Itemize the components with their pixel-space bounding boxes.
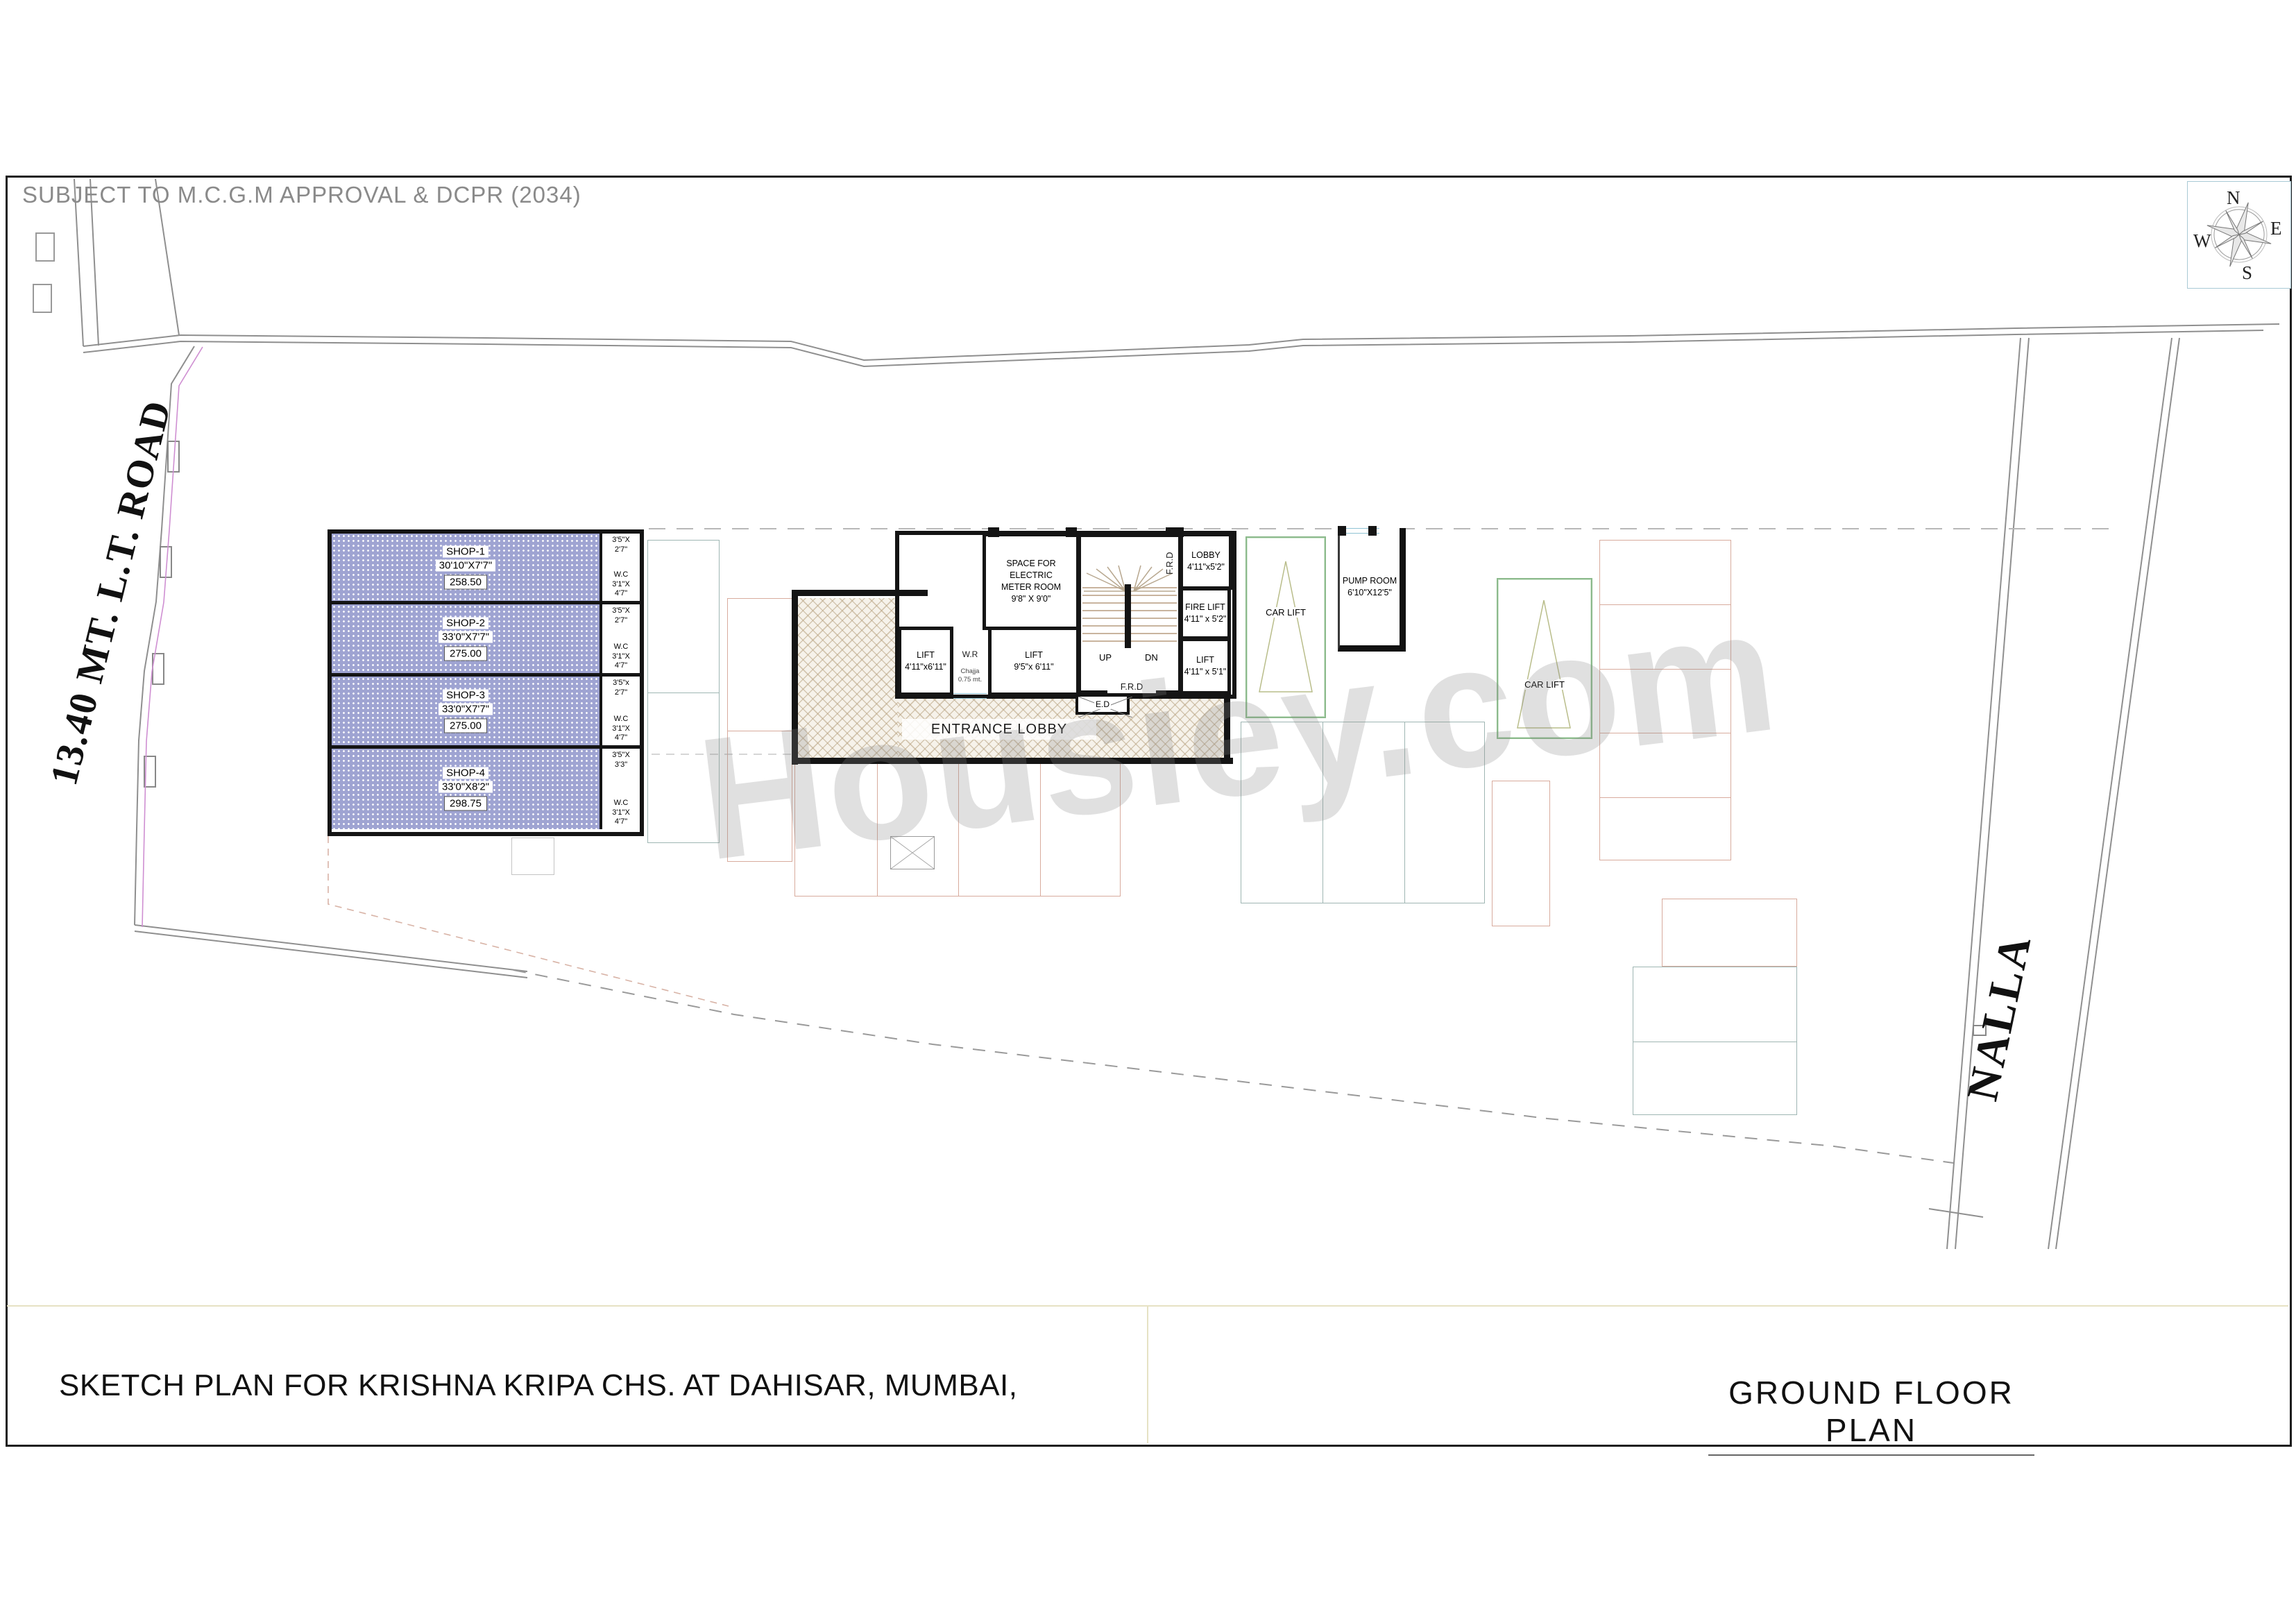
lift-left-label: LIFT 4'11"x6'11" <box>905 649 946 673</box>
nalla-east-edge <box>2048 338 2172 1249</box>
floor-plan-sheet: Housiey.com 13.40 MT. L.T. ROAD NALLA SH… <box>0 0 2296 1623</box>
shop-4-name: SHOP-4 <box>443 767 488 779</box>
shop-3: SHOP-3 33'0"X7'7" 275.00 3'5"x 2'7" W.C … <box>332 677 640 749</box>
nalla-west-edge <box>1947 338 2021 1249</box>
shop-1-closet-dims: 3'5"X 2'7" <box>612 536 630 555</box>
fire-lift: FIRE LIFT 4'11" x 5'2" <box>1180 587 1231 640</box>
shop-4: SHOP-4 33'0"X8'2" 298.75 3'5"X 3'3" W.C … <box>332 749 640 829</box>
stair-divider-wall <box>1125 584 1131 648</box>
compass-n: N <box>2227 187 2240 209</box>
car-icon <box>660 546 708 675</box>
sheet-title: SKETCH PLAN FOR KRISHNA KRIPA CHS. AT DA… <box>59 1368 1018 1403</box>
upper-lobby: LOBBY 4'11"x5'2" <box>1180 533 1232 590</box>
shop-1-area: 258.50 <box>444 575 487 589</box>
shop-1-name: SHOP-1 <box>443 545 488 557</box>
electric-meter-room: SPACE FOR ELECTRIC METER ROOM 9'8" X 9'0… <box>983 533 1080 630</box>
car-lift-left-label: CAR LIFT <box>1264 607 1308 618</box>
shop-2-wc: 3'5"X 2'7" W.C 3'1"X 4'7" <box>599 604 640 673</box>
shops-block: SHOP-1 30'10"X7'7" 258.50 3'5"X 2'7" W.C… <box>328 529 644 836</box>
title-block-divider <box>1147 1305 1148 1443</box>
upper-lobby-label: LOBBY 4'11"x5'2" <box>1187 550 1225 573</box>
shop-3-name: SHOP-3 <box>443 689 488 701</box>
car-icon <box>1604 806 1727 851</box>
shop-3-wc: 3'5"x 2'7" W.C 3'1"X 4'7" <box>599 677 640 745</box>
shop-3-wc-dims: W.C 3'1"X 4'7" <box>612 715 630 743</box>
pump-room-label: PUMP ROOM 6'10"X12'5" <box>1343 575 1397 599</box>
shop-1-wc: 3'5"X 2'7" W.C 3'1"X 4'7" <box>599 534 640 601</box>
south-boundary-line <box>135 925 527 971</box>
north-boundary-line <box>83 324 2279 360</box>
shop-2-wc-dims: W.C 3'1"X 4'7" <box>612 643 630 671</box>
shop-2-name: SHOP-2 <box>443 617 488 629</box>
car-icon <box>1645 978 1784 1029</box>
shop-2-dims: 33'0"X7'7" <box>439 631 493 643</box>
frd-top-label: F.R.D <box>1164 545 1176 581</box>
car-icon <box>1666 909 1792 956</box>
car-icon <box>1500 788 1542 919</box>
shop-3-area: 275.00 <box>444 718 487 733</box>
compass-rose: N E S W <box>2187 181 2291 289</box>
electric-meter-room-label: SPACE FOR ELECTRIC METER ROOM 9'8" X 9'0… <box>986 558 1076 605</box>
shop-1-wc-dims: W.C 3'1"X 4'7" <box>612 570 630 599</box>
compass-w: W <box>2193 230 2211 252</box>
shop-1-dims: 30'10"X7'7" <box>436 559 495 571</box>
shop-4-dims: 33'0"X8'2" <box>439 781 493 793</box>
compass-s: S <box>2242 262 2252 284</box>
shop-1: SHOP-1 30'10"X7'7" 258.50 3'5"X 2'7" W.C… <box>332 534 640 604</box>
car-icon <box>1645 1052 1784 1103</box>
shop-3-closet-dims: 3'5"x 2'7" <box>613 679 629 698</box>
compass-e: E <box>2270 218 2282 239</box>
shop-2-closet-dims: 3'5"X 2'7" <box>612 606 630 626</box>
shop-4-closet-dims: 3'5"X 3'3" <box>612 751 630 770</box>
approval-note: SUBJECT TO M.C.G.M APPROVAL & DCPR (2034… <box>22 182 581 208</box>
plan-title: GROUND FLOOR PLAN <box>1708 1374 2034 1456</box>
shop-4-area: 298.75 <box>444 797 487 811</box>
fire-lift-label: FIRE LIFT 4'11" x 5'2" <box>1184 602 1227 625</box>
shop-3-dims: 33'0"X7'7" <box>439 703 493 715</box>
shop-2: SHOP-2 33'0"X7'7" 275.00 3'5"X 2'7" W.C … <box>332 604 640 677</box>
shop-2-area: 275.00 <box>444 646 487 661</box>
wr-label: W.R <box>952 649 988 661</box>
shop-4-wc: 3'5"X 3'3" W.C 3'1"X 4'7" <box>599 749 640 829</box>
shop-4-wc-dims: W.C 3'1"X 4'7" <box>612 799 630 827</box>
